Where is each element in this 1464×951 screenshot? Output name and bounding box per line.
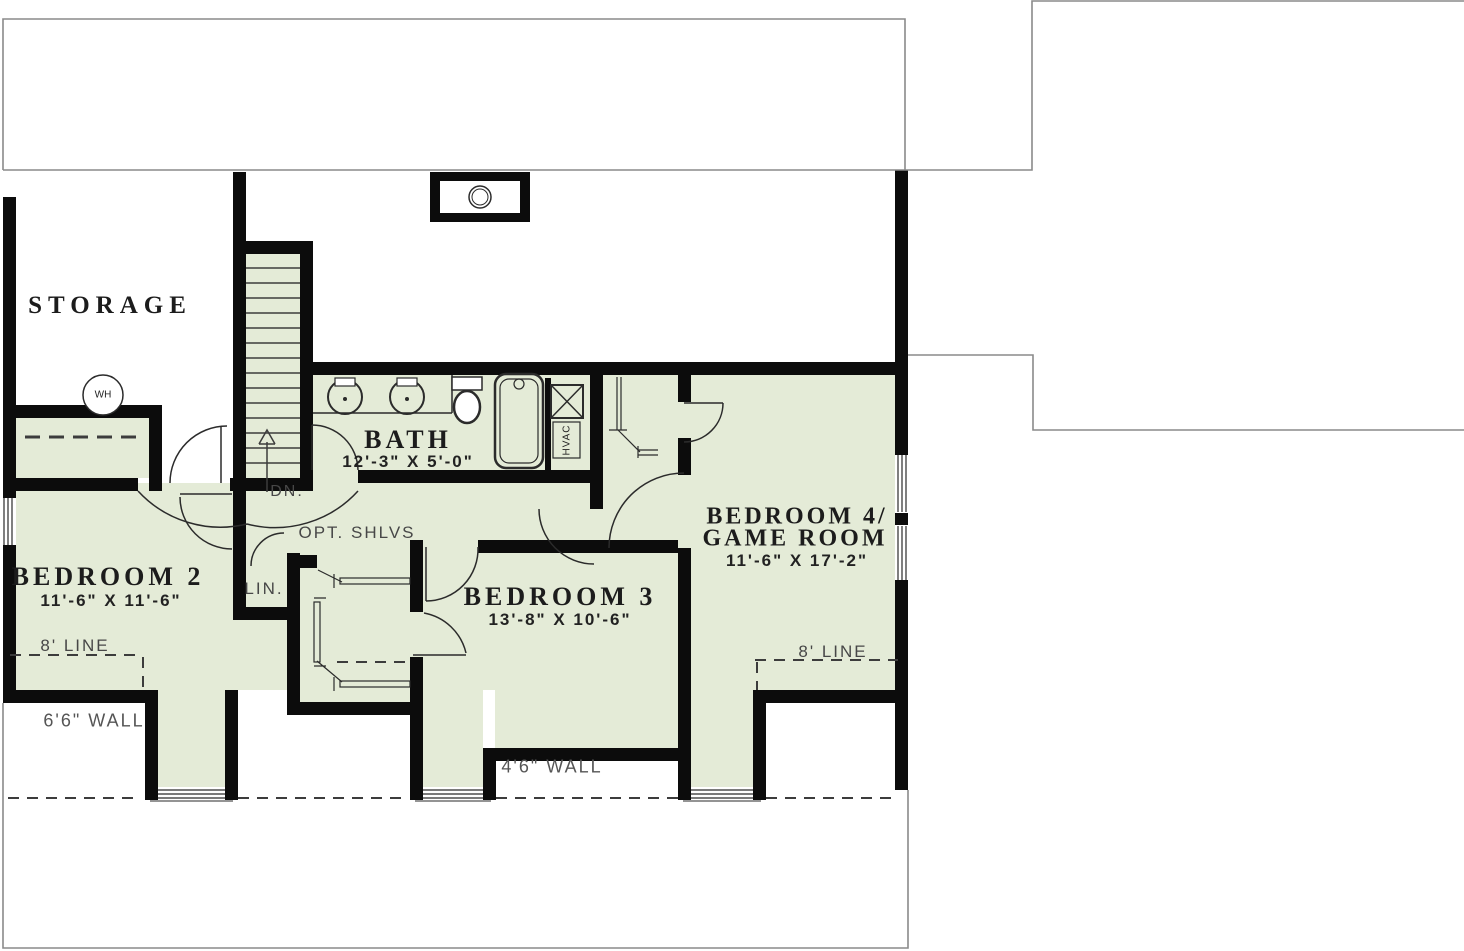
label-knee-wall-center: 4'6" WALL <box>501 757 602 778</box>
stair-treads <box>246 268 300 492</box>
label-linen: LIN. <box>244 579 283 599</box>
floor-plan: STORAGE WH BATH 12'-3" X 5'-0" DN. OPT. … <box>0 0 1464 951</box>
label-water-heater: WH <box>95 390 112 401</box>
label-knee-wall-left: 6'6" WALL <box>43 711 144 732</box>
dashed-lines <box>8 437 898 798</box>
label-bedroom4-line2: GAME ROOM <box>703 526 888 553</box>
label-storage: STORAGE <box>28 292 192 320</box>
label-bedroom2-dims: 11'-6" X 11'-6" <box>40 591 181 611</box>
corner-desk <box>609 377 658 458</box>
lower-floor-outline <box>3 1 1464 948</box>
label-bedroom4-dims: 11'-6" X 17'-2" <box>726 551 868 571</box>
plan-linework <box>0 0 1464 951</box>
label-opt-shelves: OPT. SHLVS <box>299 523 416 543</box>
label-bedroom3-dims: 13'-8" X 10'-6" <box>488 610 631 630</box>
shelf-bay <box>314 570 410 691</box>
label-bedroom2: BEDROOM 2 <box>12 562 205 592</box>
label-ceiling-line-left: 8' LINE <box>40 636 109 656</box>
label-bath-dims: 12'-3" X 5'-0" <box>342 452 474 472</box>
label-stairs-down: DN. <box>270 483 304 501</box>
label-bath: BATH <box>364 425 452 455</box>
label-bedroom3: BEDROOM 3 <box>464 582 657 612</box>
label-hvac: HVAC <box>562 424 573 455</box>
label-ceiling-line-right: 8' LINE <box>798 642 867 662</box>
